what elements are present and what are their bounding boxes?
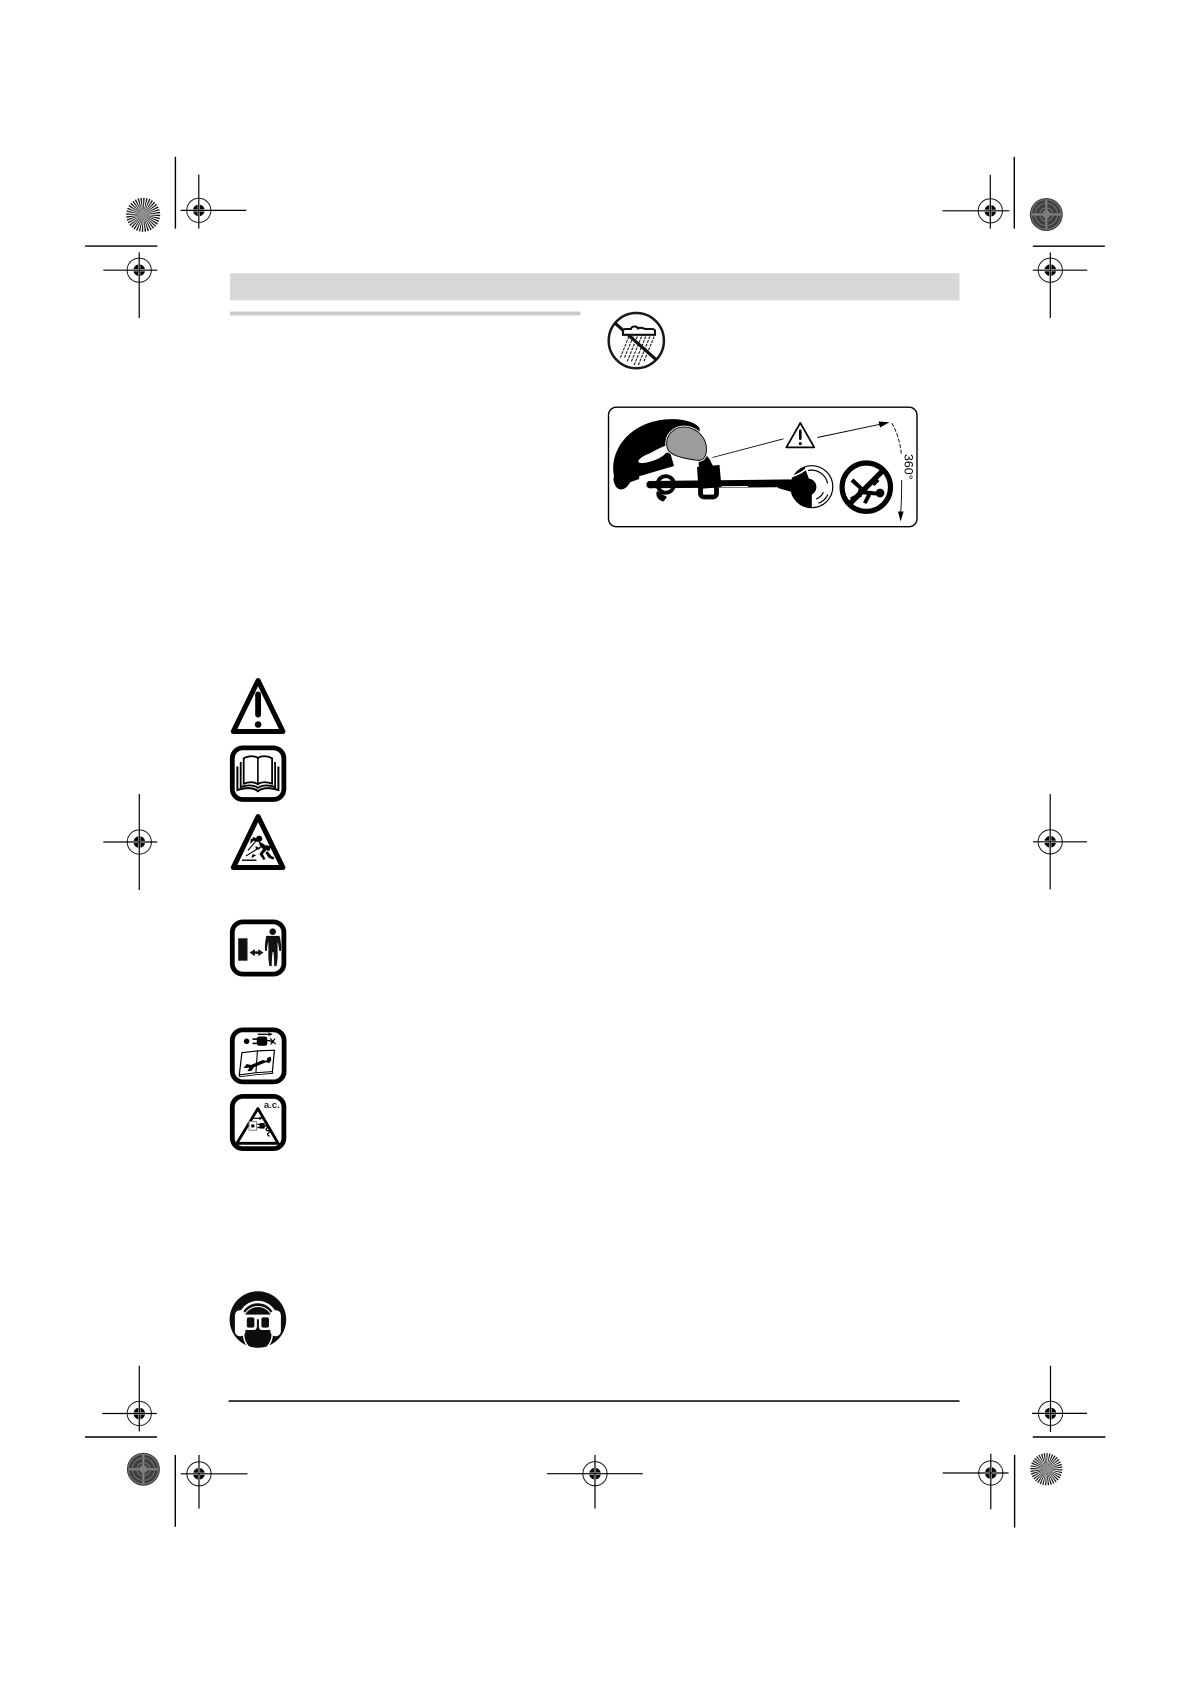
svg-text:360°: 360° [902, 454, 916, 480]
svg-text:a.c.: a.c. [264, 1100, 280, 1111]
